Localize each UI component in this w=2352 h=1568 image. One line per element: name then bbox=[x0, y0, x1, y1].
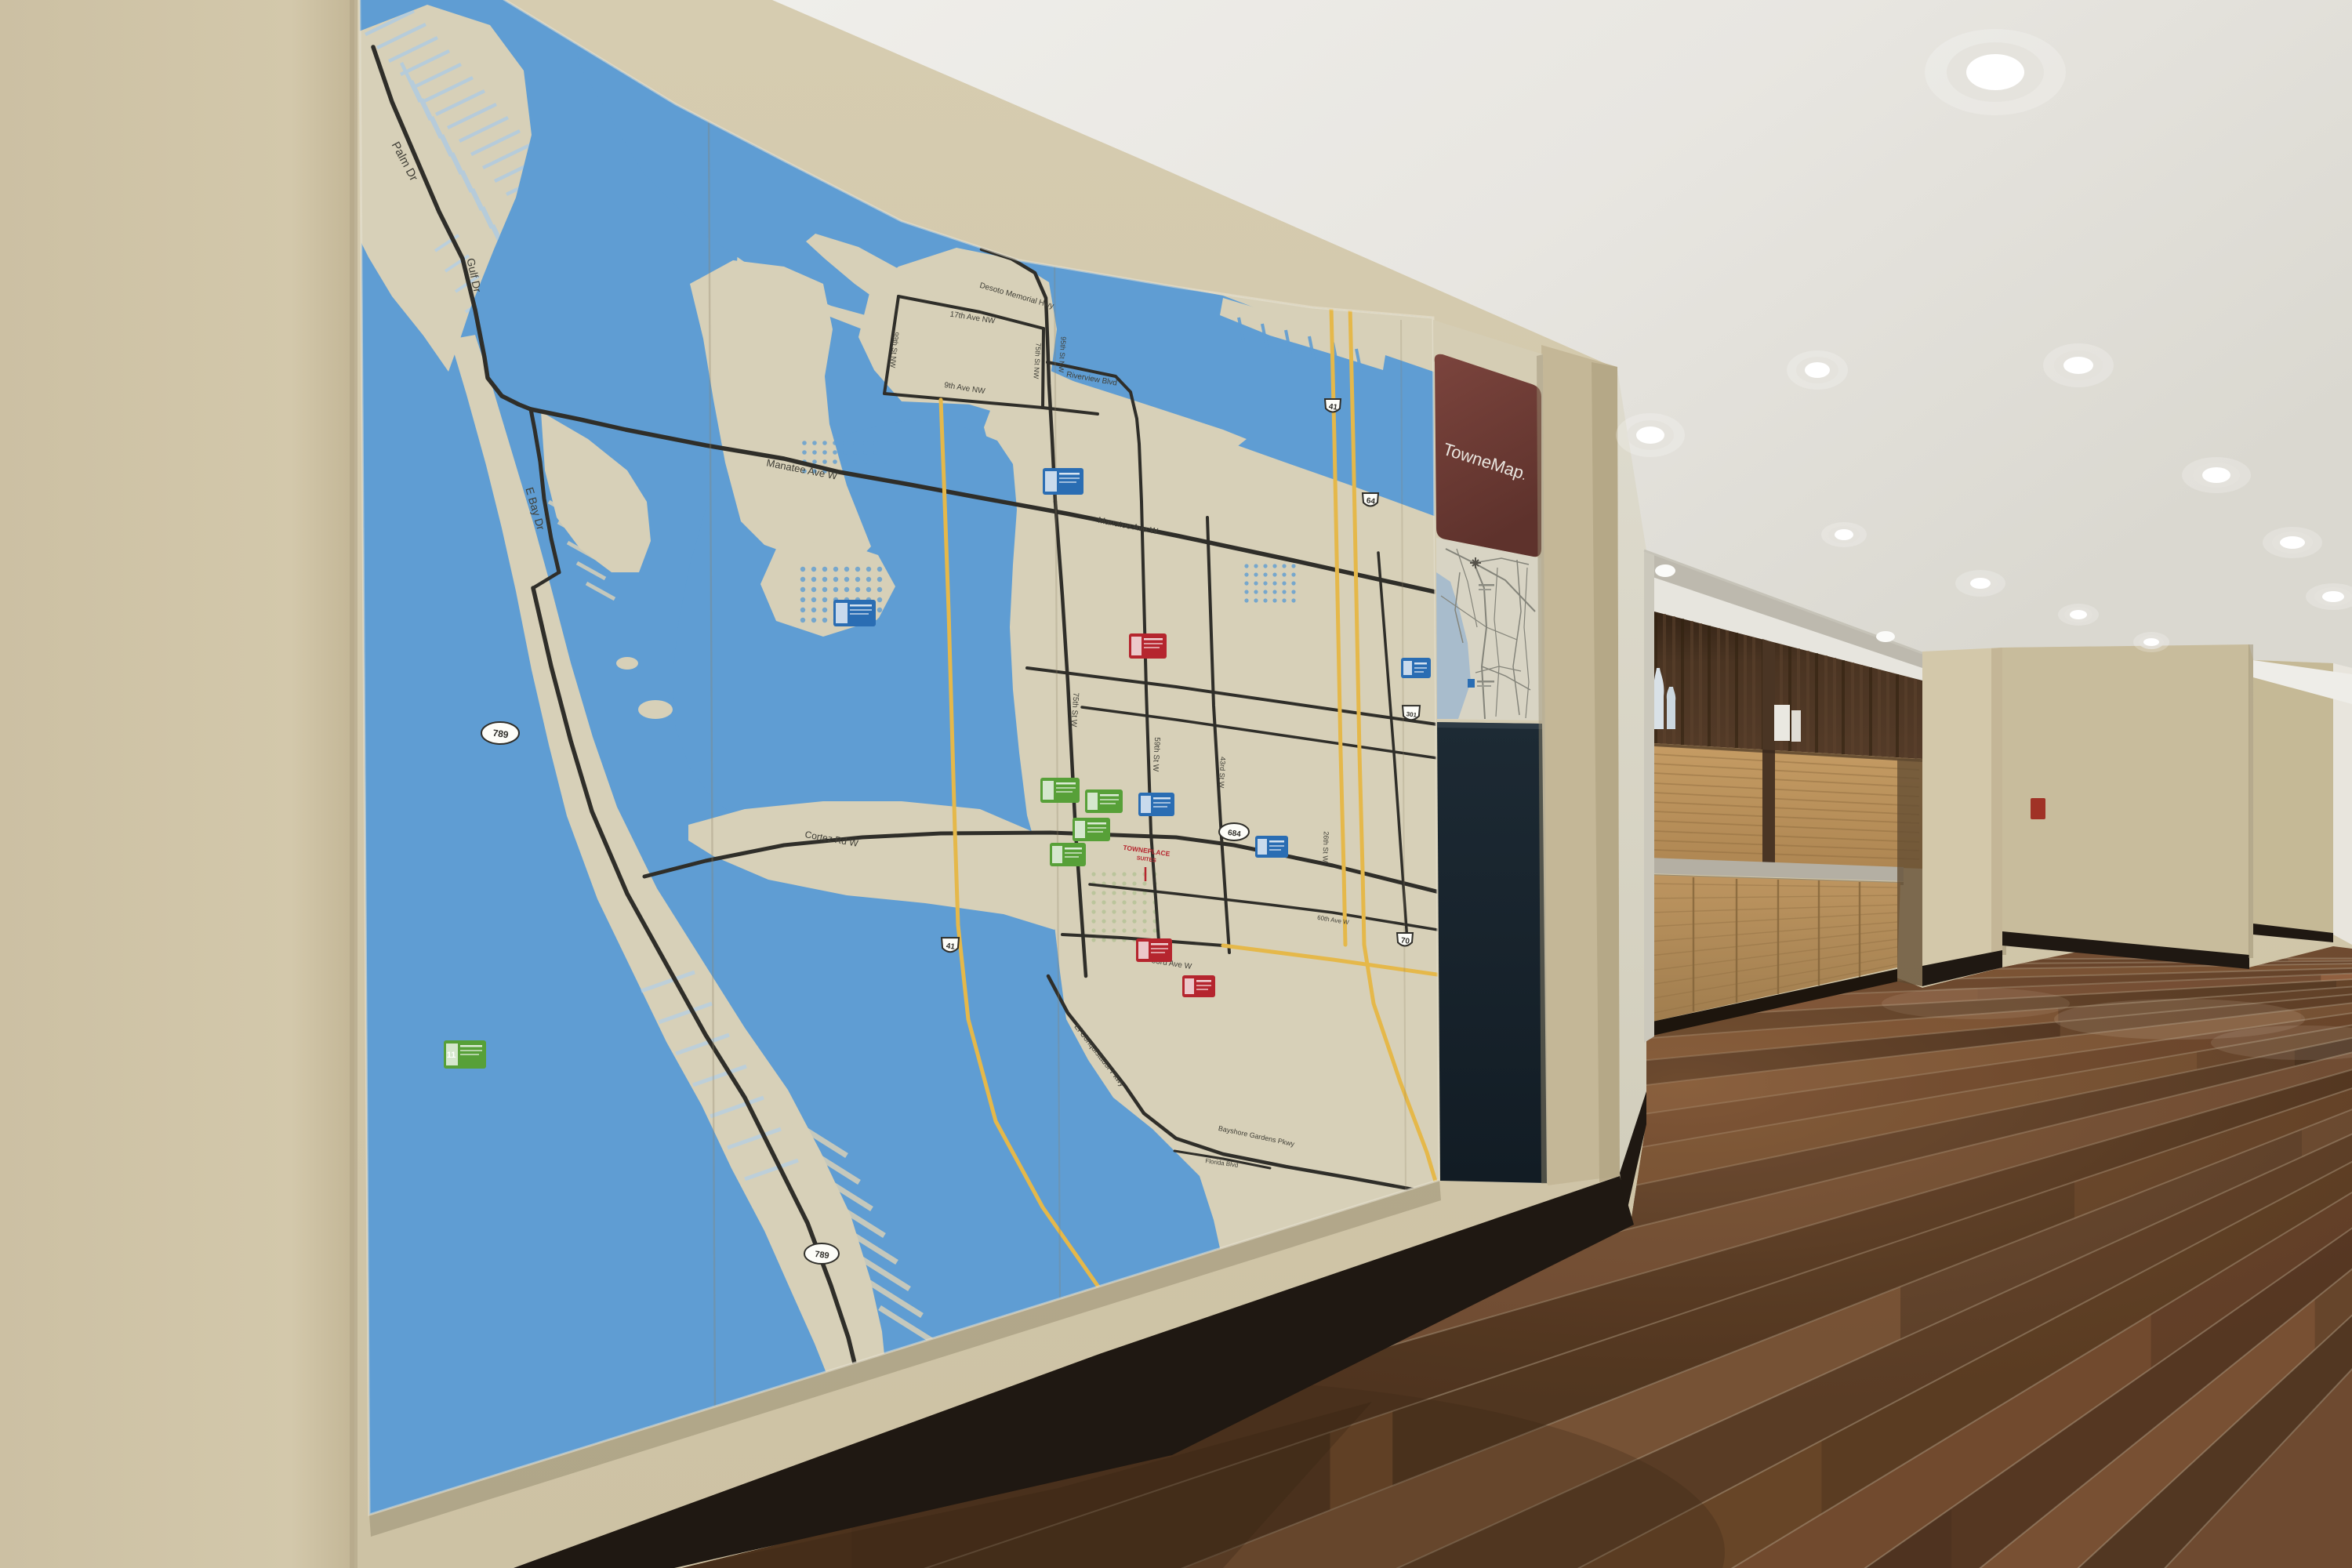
svg-text:789: 789 bbox=[492, 728, 510, 741]
svg-text:59th St W: 59th St W bbox=[1151, 737, 1161, 772]
svg-text:41: 41 bbox=[1328, 402, 1338, 412]
svg-text:64: 64 bbox=[1366, 496, 1376, 506]
svg-text:26th St W: 26th St W bbox=[1321, 831, 1330, 862]
svg-text:301: 301 bbox=[1406, 710, 1417, 719]
svg-text:11: 11 bbox=[447, 1051, 456, 1060]
svg-text:41: 41 bbox=[946, 942, 956, 952]
svg-text:789: 789 bbox=[814, 1250, 829, 1261]
svg-text:43rd St W: 43rd St W bbox=[1218, 757, 1227, 789]
svg-text:70: 70 bbox=[1400, 936, 1410, 946]
